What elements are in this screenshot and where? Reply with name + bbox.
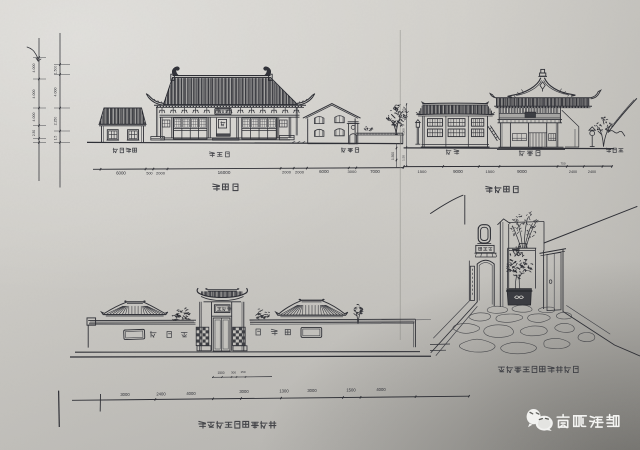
svg-text:1.500: 1.500 xyxy=(391,152,395,160)
svg-text:1300: 1300 xyxy=(279,388,289,393)
svg-text:150: 150 xyxy=(240,370,245,374)
svg-text:3000: 3000 xyxy=(120,392,130,397)
svg-text:2000: 2000 xyxy=(282,169,292,174)
svg-text:2400: 2400 xyxy=(569,170,577,174)
svg-text:2400: 2400 xyxy=(156,391,166,396)
svg-text:2.250: 2.250 xyxy=(54,117,58,126)
svg-text:750: 750 xyxy=(402,108,406,113)
svg-text:1.5: 1.5 xyxy=(54,136,58,141)
svg-text:2.30: 2.30 xyxy=(32,130,36,136)
svg-text:1500: 1500 xyxy=(418,169,428,174)
svg-text:4000: 4000 xyxy=(376,387,386,392)
svg-text:300: 300 xyxy=(231,370,236,374)
svg-text:9000: 9000 xyxy=(517,169,527,174)
svg-text:1500: 1500 xyxy=(217,371,224,375)
svg-text:500: 500 xyxy=(146,171,152,175)
svg-text:1.50: 1.50 xyxy=(402,155,406,161)
svg-text:4.000: 4.000 xyxy=(402,128,406,136)
svg-text:6000: 6000 xyxy=(116,171,126,176)
svg-text:16000: 16000 xyxy=(218,170,231,175)
svg-text:7000: 7000 xyxy=(370,169,380,174)
svg-text:750: 750 xyxy=(560,161,565,165)
svg-text:2000: 2000 xyxy=(295,169,305,174)
svg-text:3000: 3000 xyxy=(239,389,249,394)
svg-text:1.500: 1.500 xyxy=(54,66,58,75)
svg-text:4000: 4000 xyxy=(186,391,196,396)
svg-text:4.000: 4.000 xyxy=(32,90,36,99)
svg-text:4.000: 4.000 xyxy=(32,64,36,73)
svg-text:4.000: 4.000 xyxy=(54,88,58,97)
svg-text:1500: 1500 xyxy=(346,388,356,393)
svg-text:3000: 3000 xyxy=(307,388,317,393)
svg-text:4.000: 4.000 xyxy=(32,113,36,122)
svg-text:1500: 1500 xyxy=(486,169,496,174)
svg-text:6000: 6000 xyxy=(319,169,329,174)
svg-text:3000: 3000 xyxy=(348,169,358,174)
svg-text:9000: 9000 xyxy=(453,169,463,174)
svg-text:2400: 2400 xyxy=(588,170,596,174)
svg-text:2000: 2000 xyxy=(156,170,166,175)
